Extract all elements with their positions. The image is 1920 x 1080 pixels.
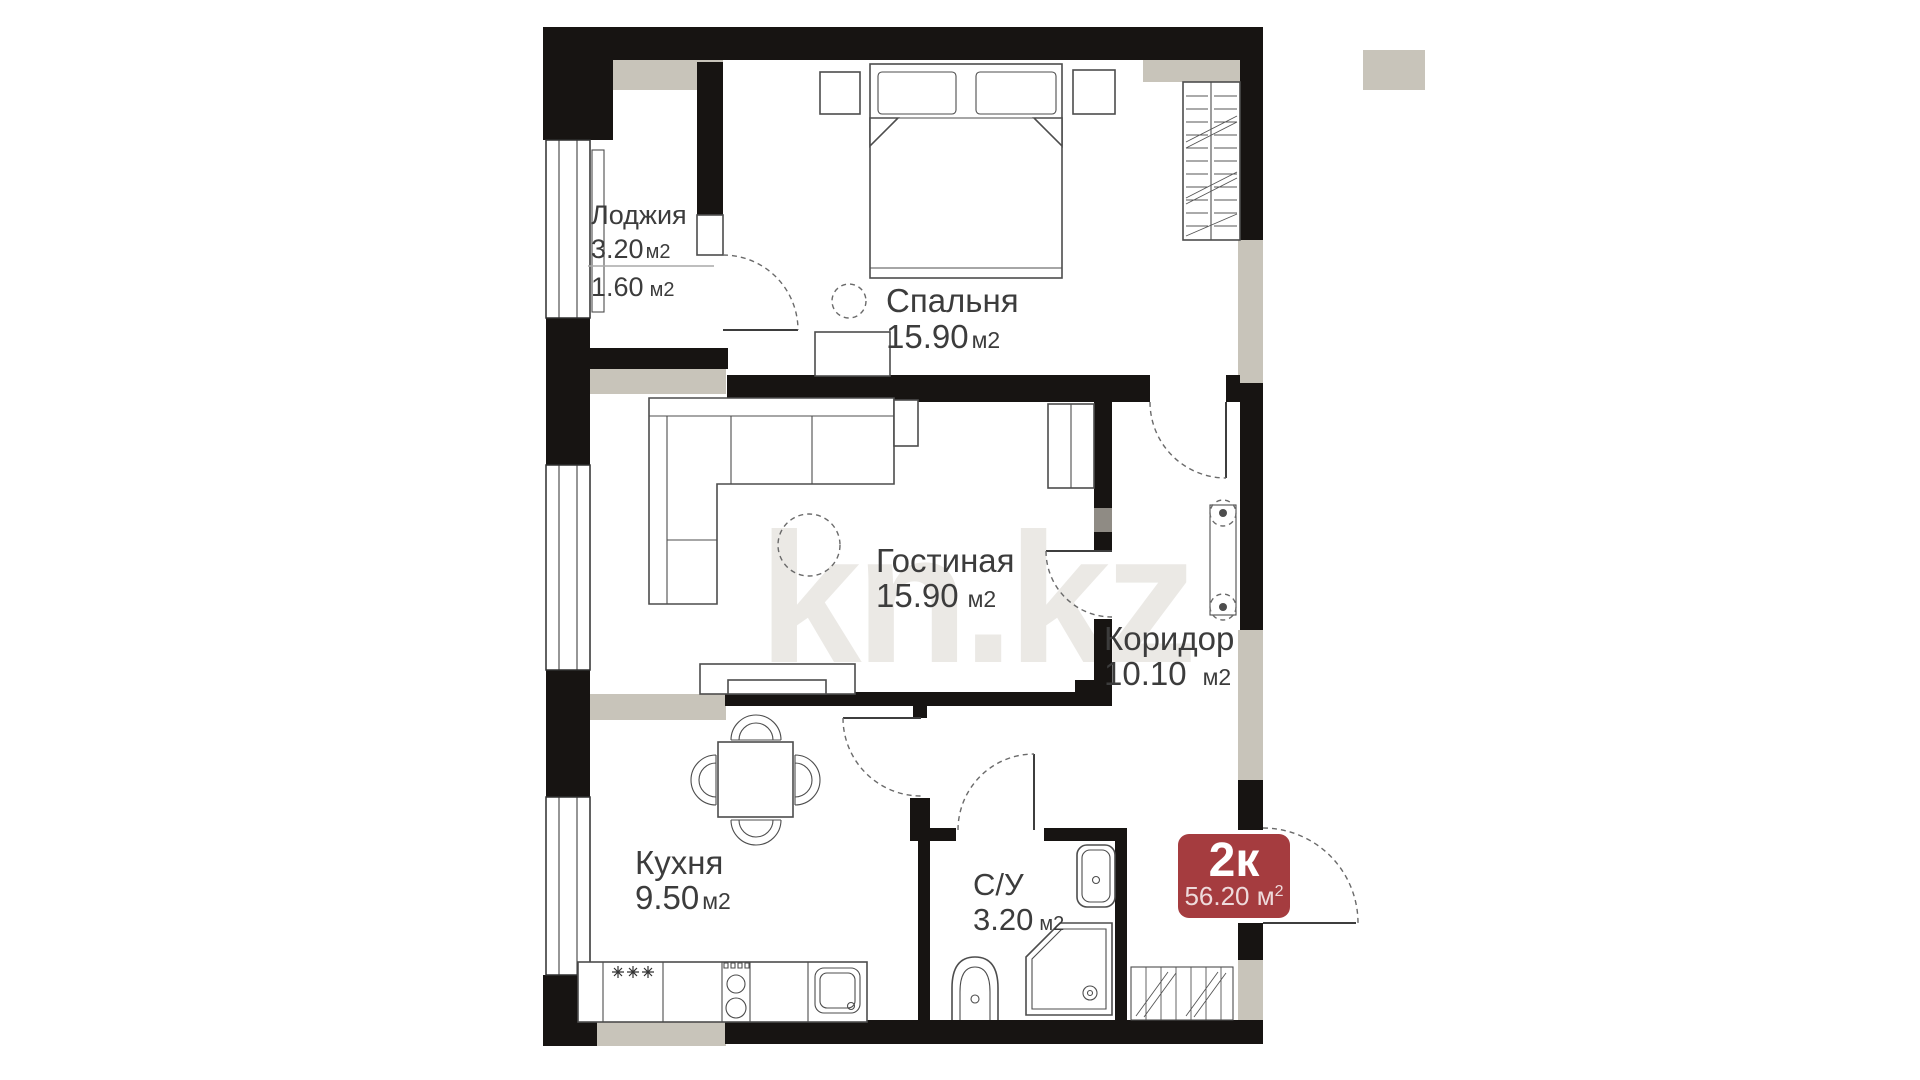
label-corridor: Коридор 10.10м2	[1104, 620, 1234, 692]
window-kitchen	[546, 797, 590, 975]
toilet	[952, 957, 998, 1020]
badge-room-count: 2к	[1209, 834, 1261, 887]
nightstand-right	[1073, 70, 1115, 114]
label-bedroom: Спальня 15.90м2	[886, 282, 1019, 355]
label-living: Гостиная 15.90м2	[876, 542, 1015, 614]
sofa-armrest	[894, 400, 918, 446]
door-frame	[697, 215, 723, 255]
bed	[870, 64, 1062, 278]
neighbor-wall-block	[1363, 50, 1425, 90]
bathroom-sink	[1077, 845, 1115, 907]
area-badge: 2к 56.20 м2	[1178, 834, 1290, 918]
room-name: Коридор	[1104, 620, 1234, 657]
dresser	[815, 332, 890, 376]
wall-corner-top-left	[543, 27, 613, 140]
tv	[728, 680, 826, 694]
wall-right-middle	[1240, 383, 1263, 630]
room-name: Гостиная	[876, 542, 1015, 579]
window-living-room	[546, 465, 590, 670]
wall-living-corridor	[1094, 402, 1112, 508]
wall-bathroom-top	[918, 828, 956, 841]
floor-plan-page: kn.kz	[0, 0, 1920, 1080]
room-name: С/У	[973, 867, 1024, 902]
window-loggia	[546, 140, 590, 318]
wall-top	[543, 27, 1263, 60]
bookshelf	[1048, 404, 1094, 488]
label-kitchen: Кухня 9.50м2	[635, 844, 731, 916]
room-name: Лоджия	[591, 200, 687, 230]
wall-bottom	[725, 1020, 1263, 1044]
wall-bathroom-right	[1115, 841, 1127, 1020]
kitchen-counter	[578, 962, 867, 1022]
badge-area: 56.20 м2	[1184, 881, 1283, 911]
wall-right-upper	[1240, 27, 1263, 240]
nightstand-left	[820, 72, 860, 114]
windows	[546, 140, 590, 975]
room-name: Кухня	[635, 844, 723, 881]
wall-loggia-right	[697, 62, 723, 215]
room-name: Спальня	[886, 282, 1019, 319]
wall-bathroom-left	[918, 841, 930, 1020]
wall-loggia-bottom	[588, 348, 728, 369]
floor-plan: kn.kz	[0, 0, 1920, 1080]
wardrobe	[1183, 82, 1240, 240]
fridge-stars	[612, 966, 654, 978]
